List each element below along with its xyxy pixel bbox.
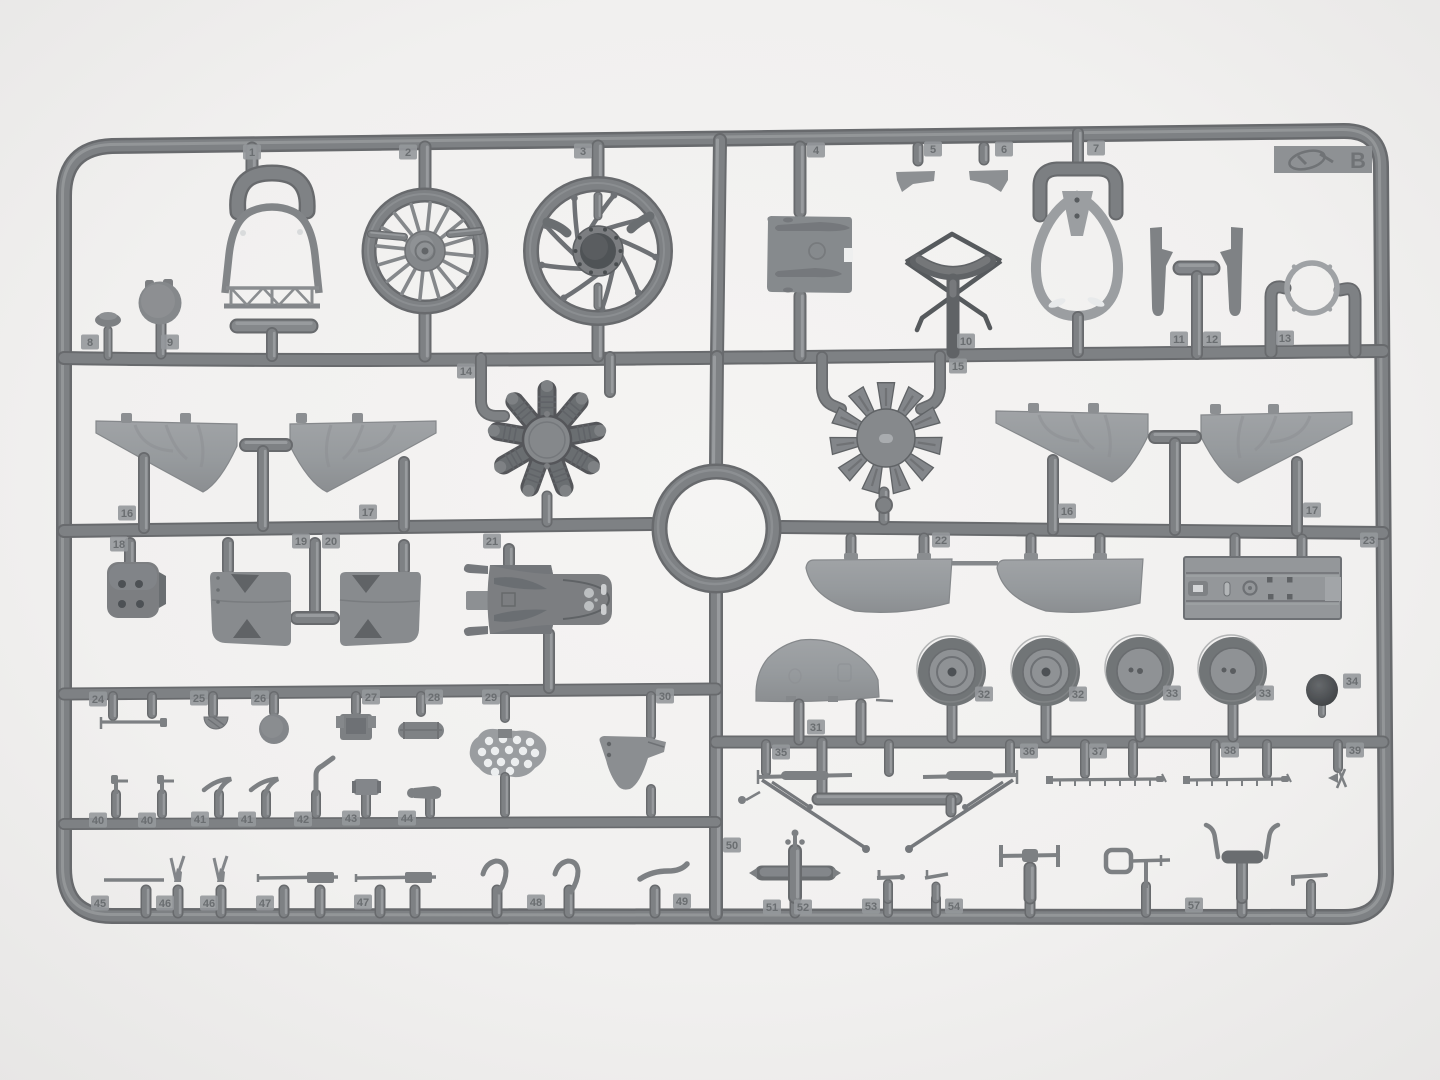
svg-text:28: 28: [428, 692, 440, 704]
svg-text:47: 47: [357, 897, 369, 909]
svg-text:12: 12: [1206, 334, 1218, 346]
svg-text:40: 40: [141, 815, 153, 827]
svg-text:5: 5: [930, 144, 936, 156]
svg-text:1: 1: [249, 147, 255, 159]
svg-text:35: 35: [775, 747, 787, 759]
svg-text:21: 21: [486, 536, 498, 548]
svg-text:32: 32: [1072, 689, 1084, 701]
svg-text:47: 47: [259, 898, 271, 910]
svg-text:6: 6: [1001, 144, 1007, 156]
svg-text:41: 41: [194, 814, 206, 826]
svg-text:13: 13: [1279, 333, 1291, 345]
svg-text:37: 37: [1092, 746, 1104, 758]
svg-text:42: 42: [297, 814, 309, 826]
svg-text:50: 50: [726, 840, 738, 852]
svg-text:B: B: [1350, 148, 1366, 173]
svg-text:17: 17: [362, 507, 374, 519]
svg-text:57: 57: [1188, 900, 1200, 912]
svg-text:3: 3: [580, 146, 586, 158]
svg-text:22: 22: [935, 535, 947, 547]
svg-text:39: 39: [1349, 745, 1361, 757]
svg-text:2: 2: [405, 147, 411, 159]
svg-text:8: 8: [87, 337, 93, 349]
svg-text:45: 45: [94, 898, 106, 910]
svg-text:15: 15: [952, 361, 964, 373]
svg-text:43: 43: [345, 813, 357, 825]
svg-text:40: 40: [92, 815, 104, 827]
svg-text:11: 11: [1173, 334, 1185, 346]
svg-text:27: 27: [365, 692, 377, 704]
svg-text:16: 16: [121, 508, 133, 520]
svg-text:53: 53: [865, 901, 877, 913]
svg-text:30: 30: [659, 691, 671, 703]
svg-text:18: 18: [113, 539, 125, 551]
svg-text:17: 17: [1306, 505, 1318, 517]
svg-text:54: 54: [948, 901, 961, 913]
svg-text:49: 49: [676, 896, 688, 908]
svg-text:10: 10: [960, 336, 972, 348]
svg-text:7: 7: [1093, 143, 1099, 155]
svg-text:33: 33: [1259, 688, 1271, 700]
svg-text:46: 46: [159, 898, 171, 910]
svg-text:9: 9: [167, 337, 173, 349]
svg-text:23: 23: [1363, 535, 1375, 547]
svg-text:36: 36: [1023, 746, 1035, 758]
svg-text:25: 25: [193, 693, 205, 705]
svg-text:52: 52: [797, 902, 809, 914]
svg-text:26: 26: [254, 693, 266, 705]
svg-text:46: 46: [203, 898, 215, 910]
svg-text:24: 24: [92, 694, 105, 706]
svg-text:48: 48: [530, 897, 542, 909]
svg-text:44: 44: [401, 813, 414, 825]
svg-text:31: 31: [810, 722, 822, 734]
svg-text:29: 29: [485, 692, 497, 704]
svg-text:32: 32: [978, 689, 990, 701]
svg-text:14: 14: [460, 366, 473, 378]
svg-text:20: 20: [325, 536, 337, 548]
svg-text:33: 33: [1166, 688, 1178, 700]
svg-text:34: 34: [1346, 676, 1359, 688]
svg-text:41: 41: [241, 814, 253, 826]
svg-text:19: 19: [295, 536, 307, 548]
svg-text:51: 51: [766, 902, 778, 914]
svg-text:16: 16: [1061, 506, 1073, 518]
svg-text:38: 38: [1224, 745, 1236, 757]
svg-text:4: 4: [813, 145, 820, 157]
